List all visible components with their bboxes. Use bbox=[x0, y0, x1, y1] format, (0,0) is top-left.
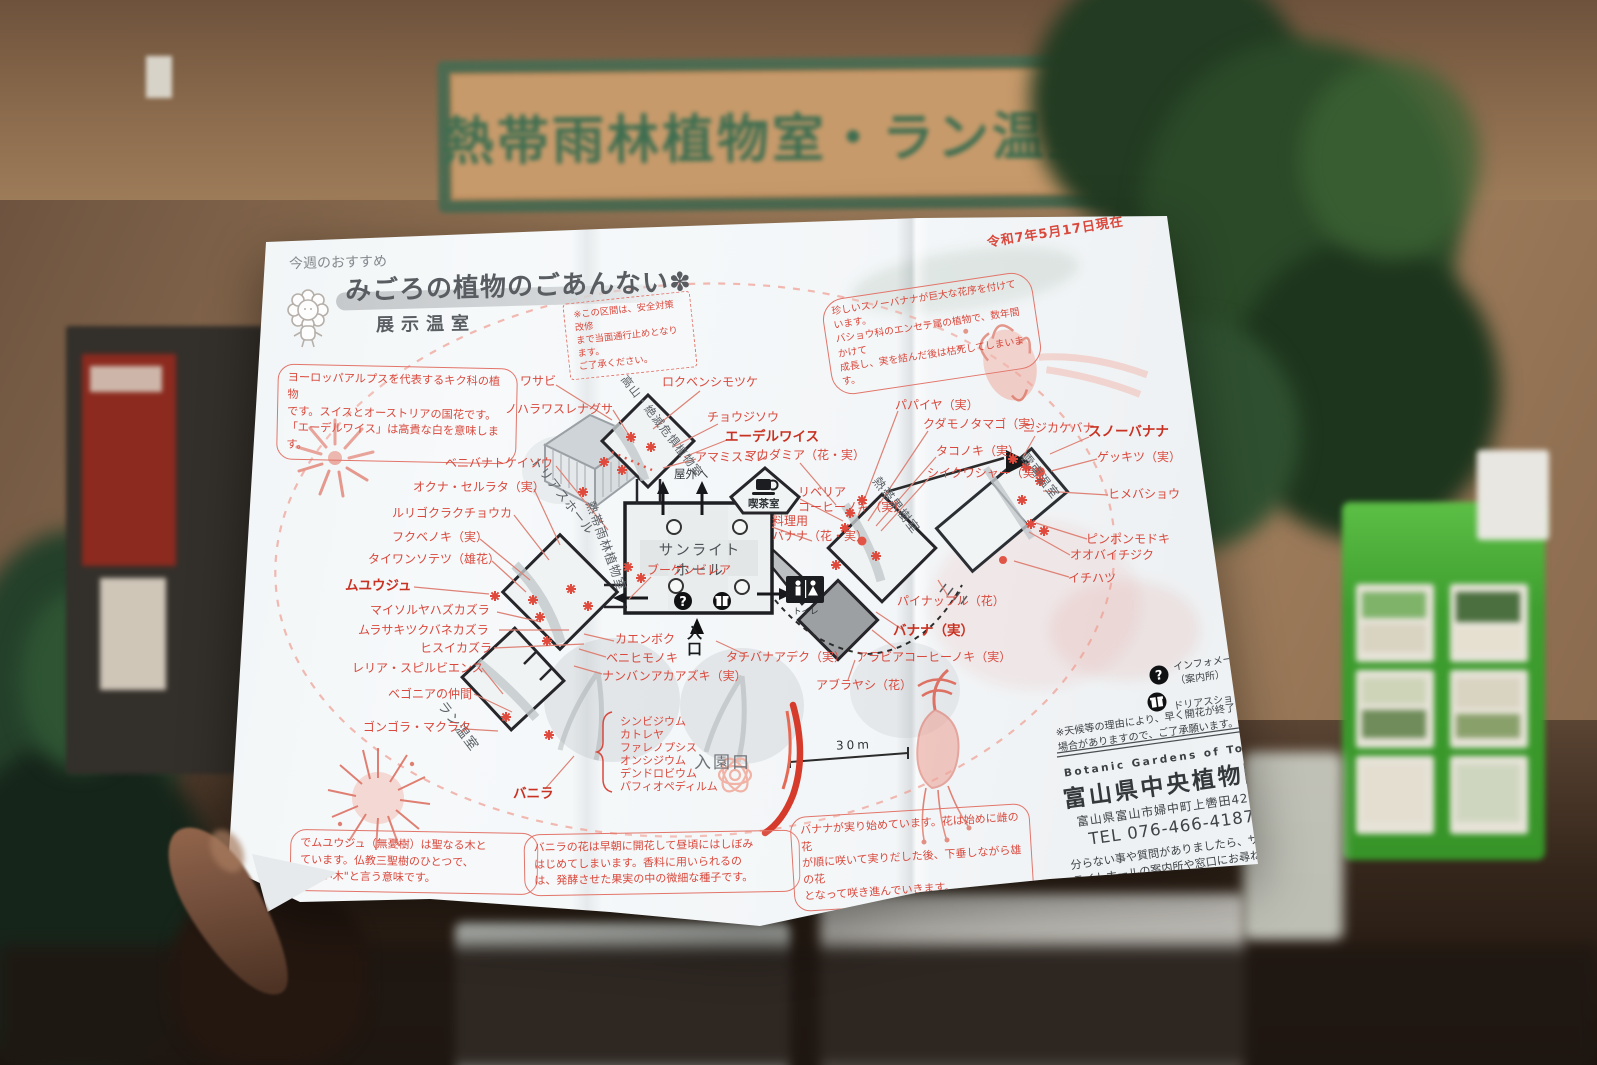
label-snow-banana: スノーバナナ bbox=[1088, 424, 1169, 441]
scale-label: 30m bbox=[836, 737, 872, 752]
label-gongora: ゴンゴラ・マクラタ bbox=[363, 720, 471, 735]
toilet-label: トイレ bbox=[793, 605, 819, 617]
label-ichihatsu: イチハツ bbox=[1068, 571, 1116, 586]
label-pinponmodoki: ピンポンモドキ bbox=[1086, 532, 1170, 547]
entrance-label: 入口 bbox=[687, 626, 704, 658]
label-nanban-akaazuki: ナンバンアカアズキ（実） bbox=[602, 669, 747, 684]
label-begonia: ベゴニアの仲間 bbox=[388, 687, 472, 702]
label-mysore: マイソルヤハズカズラ bbox=[370, 603, 490, 618]
label-gekkitsu: ゲッキツ（実） bbox=[1097, 450, 1181, 465]
orchid-list-item: パフィオペディルム bbox=[620, 781, 718, 794]
label-benihimonoki: ベニヒモノキ bbox=[606, 651, 678, 666]
label-rurigokurakuchouka: ルリゴクラクチョウカ bbox=[392, 506, 512, 521]
label-papaya: パパイヤ（実） bbox=[895, 398, 979, 413]
label-takonoki: タコノキ（実） bbox=[936, 444, 1020, 459]
question-icon: ? bbox=[674, 592, 692, 610]
legend-gift-icon bbox=[1146, 691, 1167, 712]
toilet-icon bbox=[786, 576, 824, 603]
label-murasakitsukubane: ムラサキツクバネカズラ bbox=[358, 623, 489, 638]
label-fukubenoki: フクベノキ（実） bbox=[392, 530, 488, 545]
label-taiwansotetsu: タイワンソテツ（雄花） bbox=[368, 552, 500, 567]
callout-muyuuju: でムユウジュ（無憂樹）は聖なる木と ています。仏教三聖樹のひとつで、 のない木"… bbox=[289, 829, 538, 895]
label-choujisou: チョウジソウ bbox=[707, 410, 779, 425]
mascot-character bbox=[288, 290, 328, 347]
label-arabia-coffee: アラビアコーヒーノキ（実） bbox=[856, 650, 1011, 665]
legend-question-icon: ? bbox=[1148, 664, 1169, 685]
pamphlet-subtitle: 展示温室 bbox=[376, 309, 476, 337]
label-wasabi: ワサビ bbox=[520, 374, 556, 389]
photo-scene: 熱帯雨林植物室・ラン温室 bbox=[0, 0, 1597, 1065]
room-label-cafe: 喫茶室 bbox=[748, 496, 780, 511]
label-aburayashi: アブラヤシ（花） bbox=[816, 678, 912, 693]
gate-label: 入園口 bbox=[694, 748, 751, 773]
label-banana-fruit: バナナ（実） bbox=[893, 623, 974, 640]
label-vanilla: バニラ bbox=[513, 786, 554, 803]
label-edelweiss: エーデルワイス bbox=[725, 429, 819, 446]
label-laelia: レリア・スピルビエンス bbox=[352, 661, 484, 676]
label-himebashou: ヒメバショウ bbox=[1108, 487, 1180, 502]
svg-text:?: ? bbox=[679, 595, 687, 610]
label-kaenboku: カエンボク bbox=[615, 632, 675, 647]
label-pineapple: パイナップル（花） bbox=[897, 594, 1005, 609]
label-shiikuwashaa: シイクワシャー（実） bbox=[927, 466, 1047, 481]
label-nijikakebana: ニジカケバナ bbox=[1023, 421, 1095, 436]
label-okuna-serrata: オクナ・セルラタ（実） bbox=[413, 480, 545, 495]
callout-banana: バナナが実り始めています。花は始めに雌の花 が順に咲いて実りだした後、下垂しなが… bbox=[789, 803, 1034, 912]
label-noharawasurenagusa: ノハラワスレナグサ bbox=[505, 402, 613, 417]
label-bougainvillea: ブーゲンビレア bbox=[647, 563, 731, 578]
gift-icon bbox=[713, 592, 731, 610]
label-rokubenshimotsuke: ロクベンシモツケ bbox=[662, 375, 758, 390]
label-oobaichijiku: オオバイチジク bbox=[1070, 548, 1154, 563]
callout-vanilla: バニラの花は早朝に開花して昼頃にはしぼみ はじめてしまいます。香料に用いられるの… bbox=[523, 830, 800, 896]
label-tachibana-adeku: タチバナアデク（実） bbox=[726, 650, 846, 665]
callout-closure: ※この区間は、安全対策改修 まで当面通行止めとなります。 ご了承ください。 bbox=[562, 291, 697, 381]
label-hisuikazura: ヒスイカズラ bbox=[420, 641, 492, 656]
label-benibanatokeisou: ベニバナトケイソウ bbox=[445, 456, 553, 471]
label-macadamia: マカダミア（花・実） bbox=[745, 448, 865, 463]
label-liberia-coffee: リベリア コーヒーノキ（実） bbox=[798, 485, 905, 515]
outdoor-label: 屋外へ bbox=[674, 466, 709, 482]
callout-edelweiss: ヨーロッパアルプスを代表するキク科の植物 です。スイスとオーストリアの国花です。… bbox=[276, 363, 518, 464]
label-cooking-banana: 料理用 バナナ（花・実） bbox=[772, 514, 868, 544]
label-muyuuju: ムユウジュ bbox=[345, 578, 412, 595]
